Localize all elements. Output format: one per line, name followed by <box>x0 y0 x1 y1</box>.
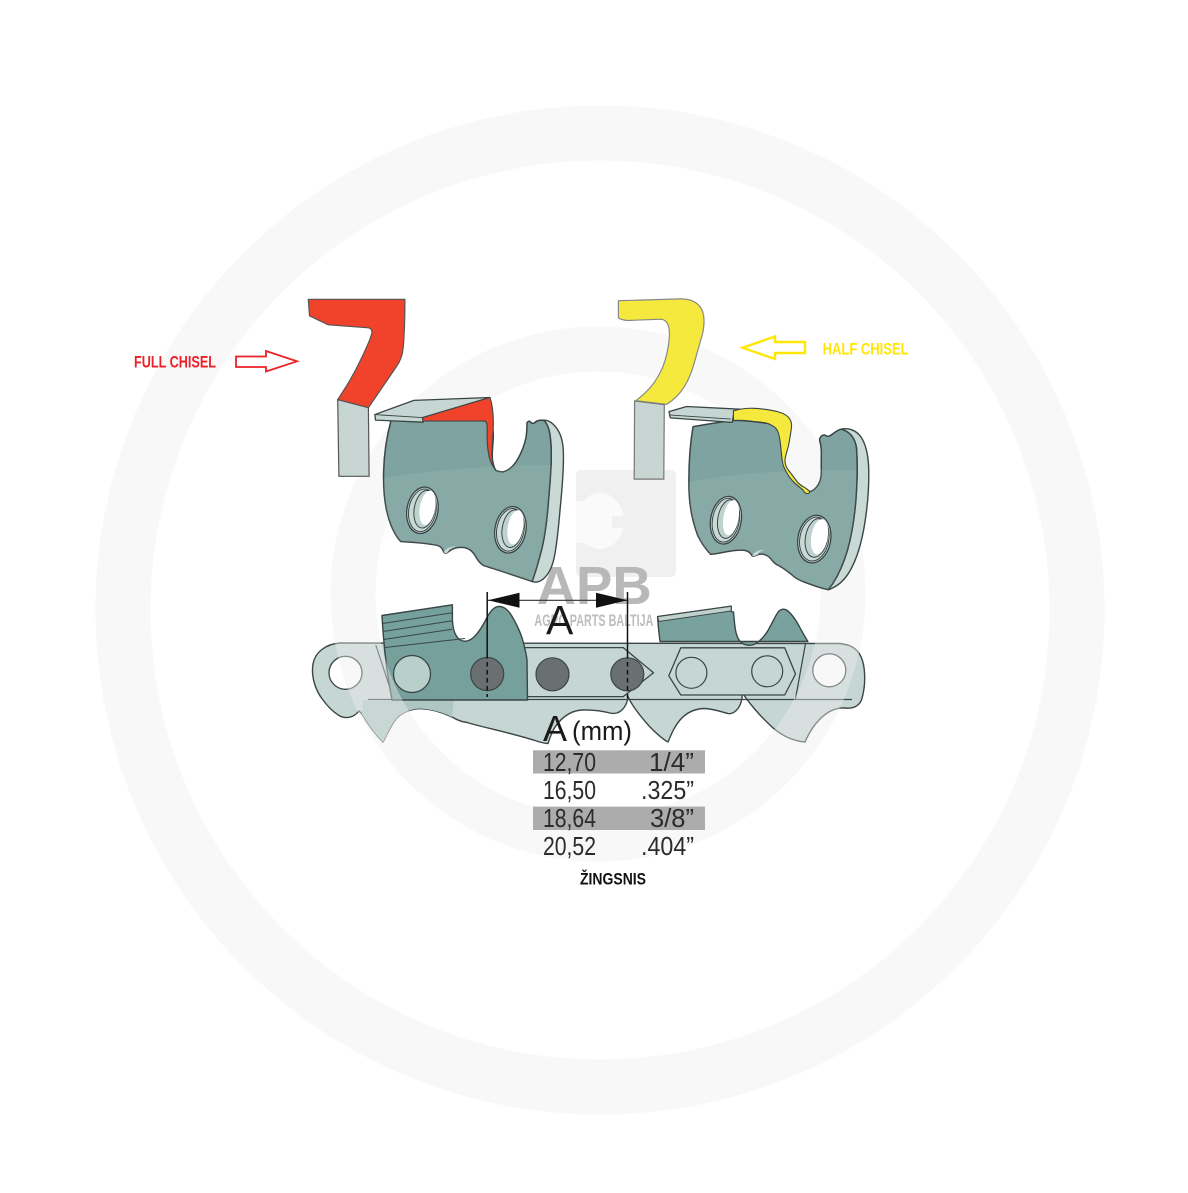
svg-text:.325”: .325” <box>641 775 694 805</box>
svg-text:(mm): (mm) <box>572 716 632 746</box>
svg-text:12,70: 12,70 <box>543 747 596 777</box>
svg-text:HALF CHISEL: HALF CHISEL <box>823 340 909 359</box>
svg-text:20,52: 20,52 <box>543 831 596 861</box>
svg-text:A: A <box>543 708 567 749</box>
svg-text:A: A <box>546 597 574 643</box>
svg-text:.404”: .404” <box>641 831 694 861</box>
svg-text:18,64: 18,64 <box>543 803 596 833</box>
svg-text:1/4”: 1/4” <box>649 747 694 777</box>
svg-text:FULL CHISEL: FULL CHISEL <box>134 353 216 372</box>
svg-text:ŽINGSNIS: ŽINGSNIS <box>580 870 646 889</box>
svg-text:16,50: 16,50 <box>543 775 596 805</box>
svg-text:3/8”: 3/8” <box>650 803 694 833</box>
